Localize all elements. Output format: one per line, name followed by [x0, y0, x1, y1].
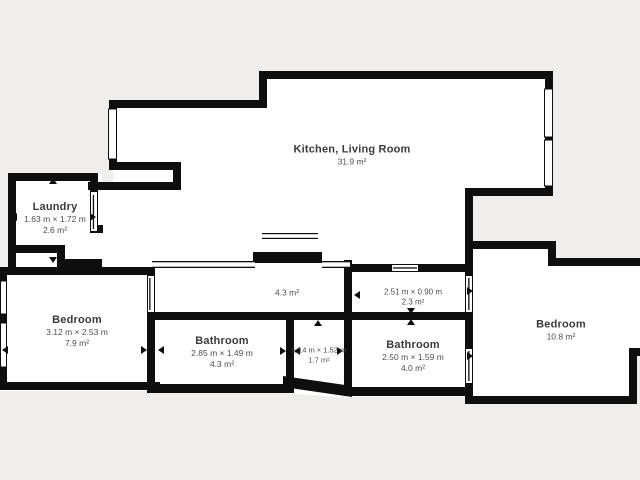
passage-floor — [90, 186, 185, 271]
kitchen-window-left — [109, 109, 117, 159]
bedroom-left-window-2 — [1, 323, 7, 367]
kitchen-window-right-1 — [545, 89, 553, 137]
lower-rooms-floor — [0, 267, 473, 397]
floorplan-drawing — [0, 0, 640, 480]
bedroom-right-floor — [469, 245, 640, 400]
kitchen-window-right-2 — [545, 140, 553, 186]
floorplan-canvas: Kitchen, Living Room 31.9 m² Laundry 1.6… — [0, 0, 640, 480]
bedroom-left-window-1 — [1, 281, 7, 314]
